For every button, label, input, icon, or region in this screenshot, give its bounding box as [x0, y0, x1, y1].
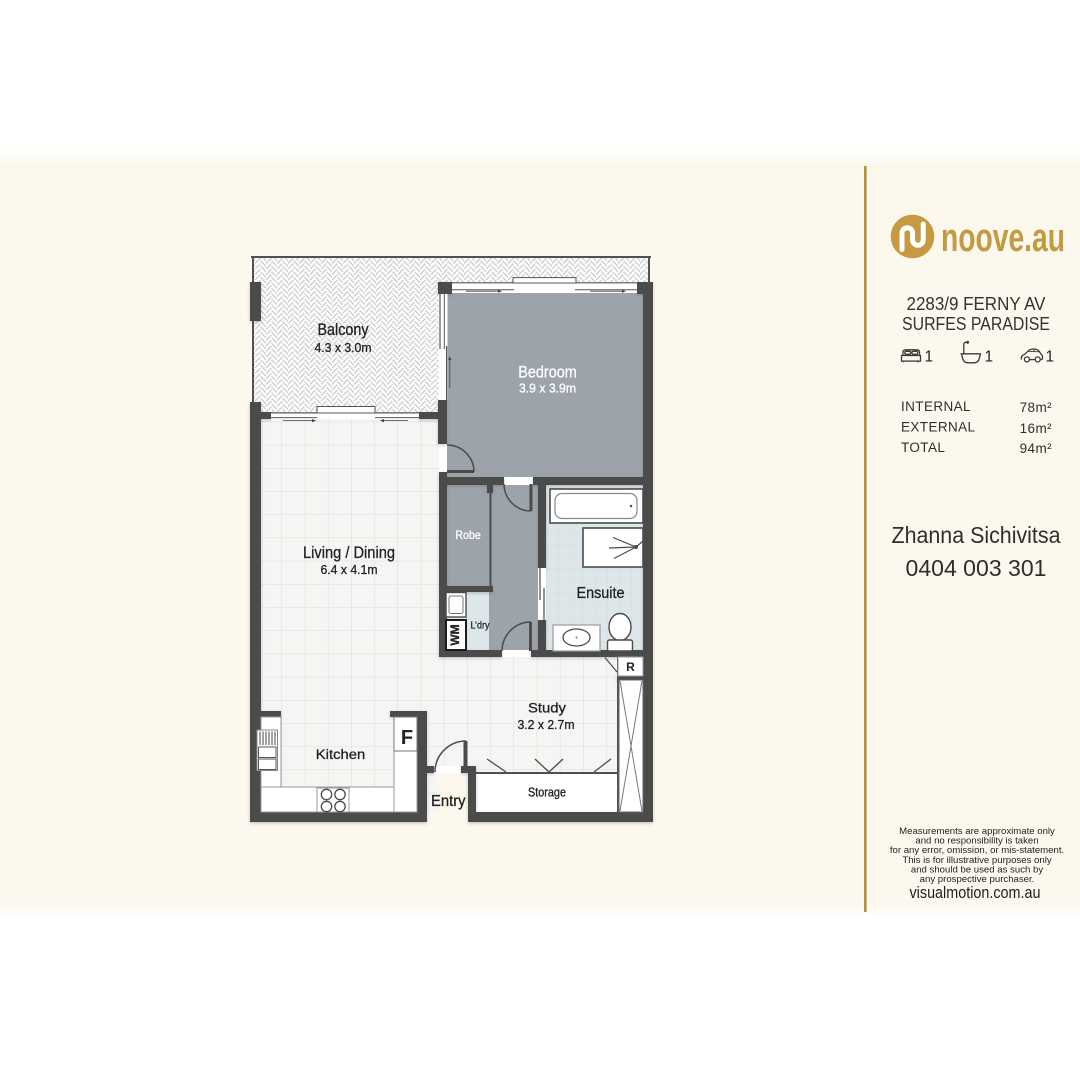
svg-text:16m²: 16m² — [1020, 421, 1052, 436]
svg-text:visualmotion.com.au: visualmotion.com.au — [910, 884, 1041, 902]
svg-text:0404 003 301: 0404 003 301 — [906, 555, 1047, 581]
svg-text:1: 1 — [1046, 349, 1055, 366]
svg-text:2283/9 FERNY AV: 2283/9 FERNY AV — [907, 293, 1047, 314]
svg-text:TOTAL: TOTAL — [901, 440, 945, 455]
svg-text:noove.au: noove.au — [941, 216, 1065, 260]
svg-text:94m²: 94m² — [1020, 441, 1052, 456]
svg-text:INTERNAL: INTERNAL — [901, 399, 971, 414]
svg-text:Zhanna Sichivitsa: Zhanna Sichivitsa — [892, 522, 1061, 548]
svg-text:78m²: 78m² — [1020, 400, 1052, 415]
svg-text:EXTERNAL: EXTERNAL — [901, 420, 976, 435]
svg-text:1: 1 — [925, 349, 934, 366]
svg-text:1: 1 — [985, 349, 994, 366]
svg-text:SURFES PARADISE: SURFES PARADISE — [902, 313, 1050, 334]
